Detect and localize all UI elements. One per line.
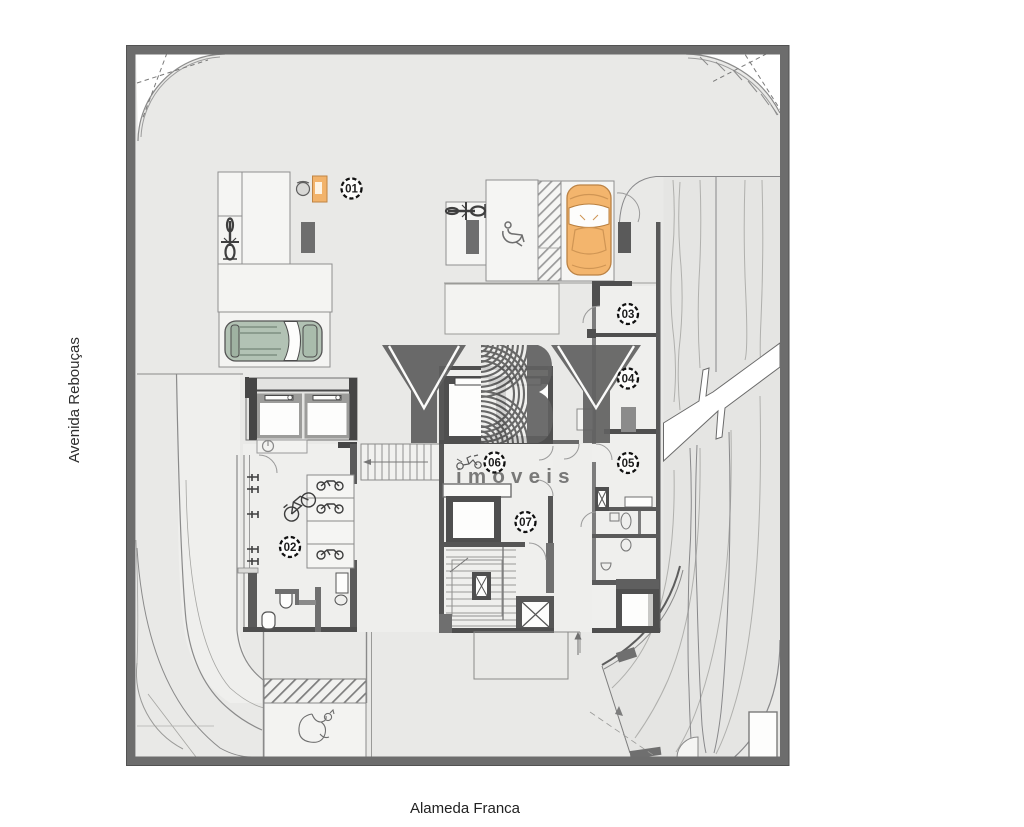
svg-text:02: 02 [284,542,297,554]
svg-text:Avenida Rebouças: Avenida Rebouças [66,337,83,463]
svg-text:Alameda Franca: Alameda Franca [410,800,521,817]
svg-text:05: 05 [622,458,635,470]
svg-text:03: 03 [622,309,635,321]
svg-text:04: 04 [622,374,635,386]
svg-text:imóveis: imóveis [456,465,576,488]
svg-text:01: 01 [345,184,358,196]
svg-text:06: 06 [488,458,501,470]
svg-text:07: 07 [519,517,532,529]
